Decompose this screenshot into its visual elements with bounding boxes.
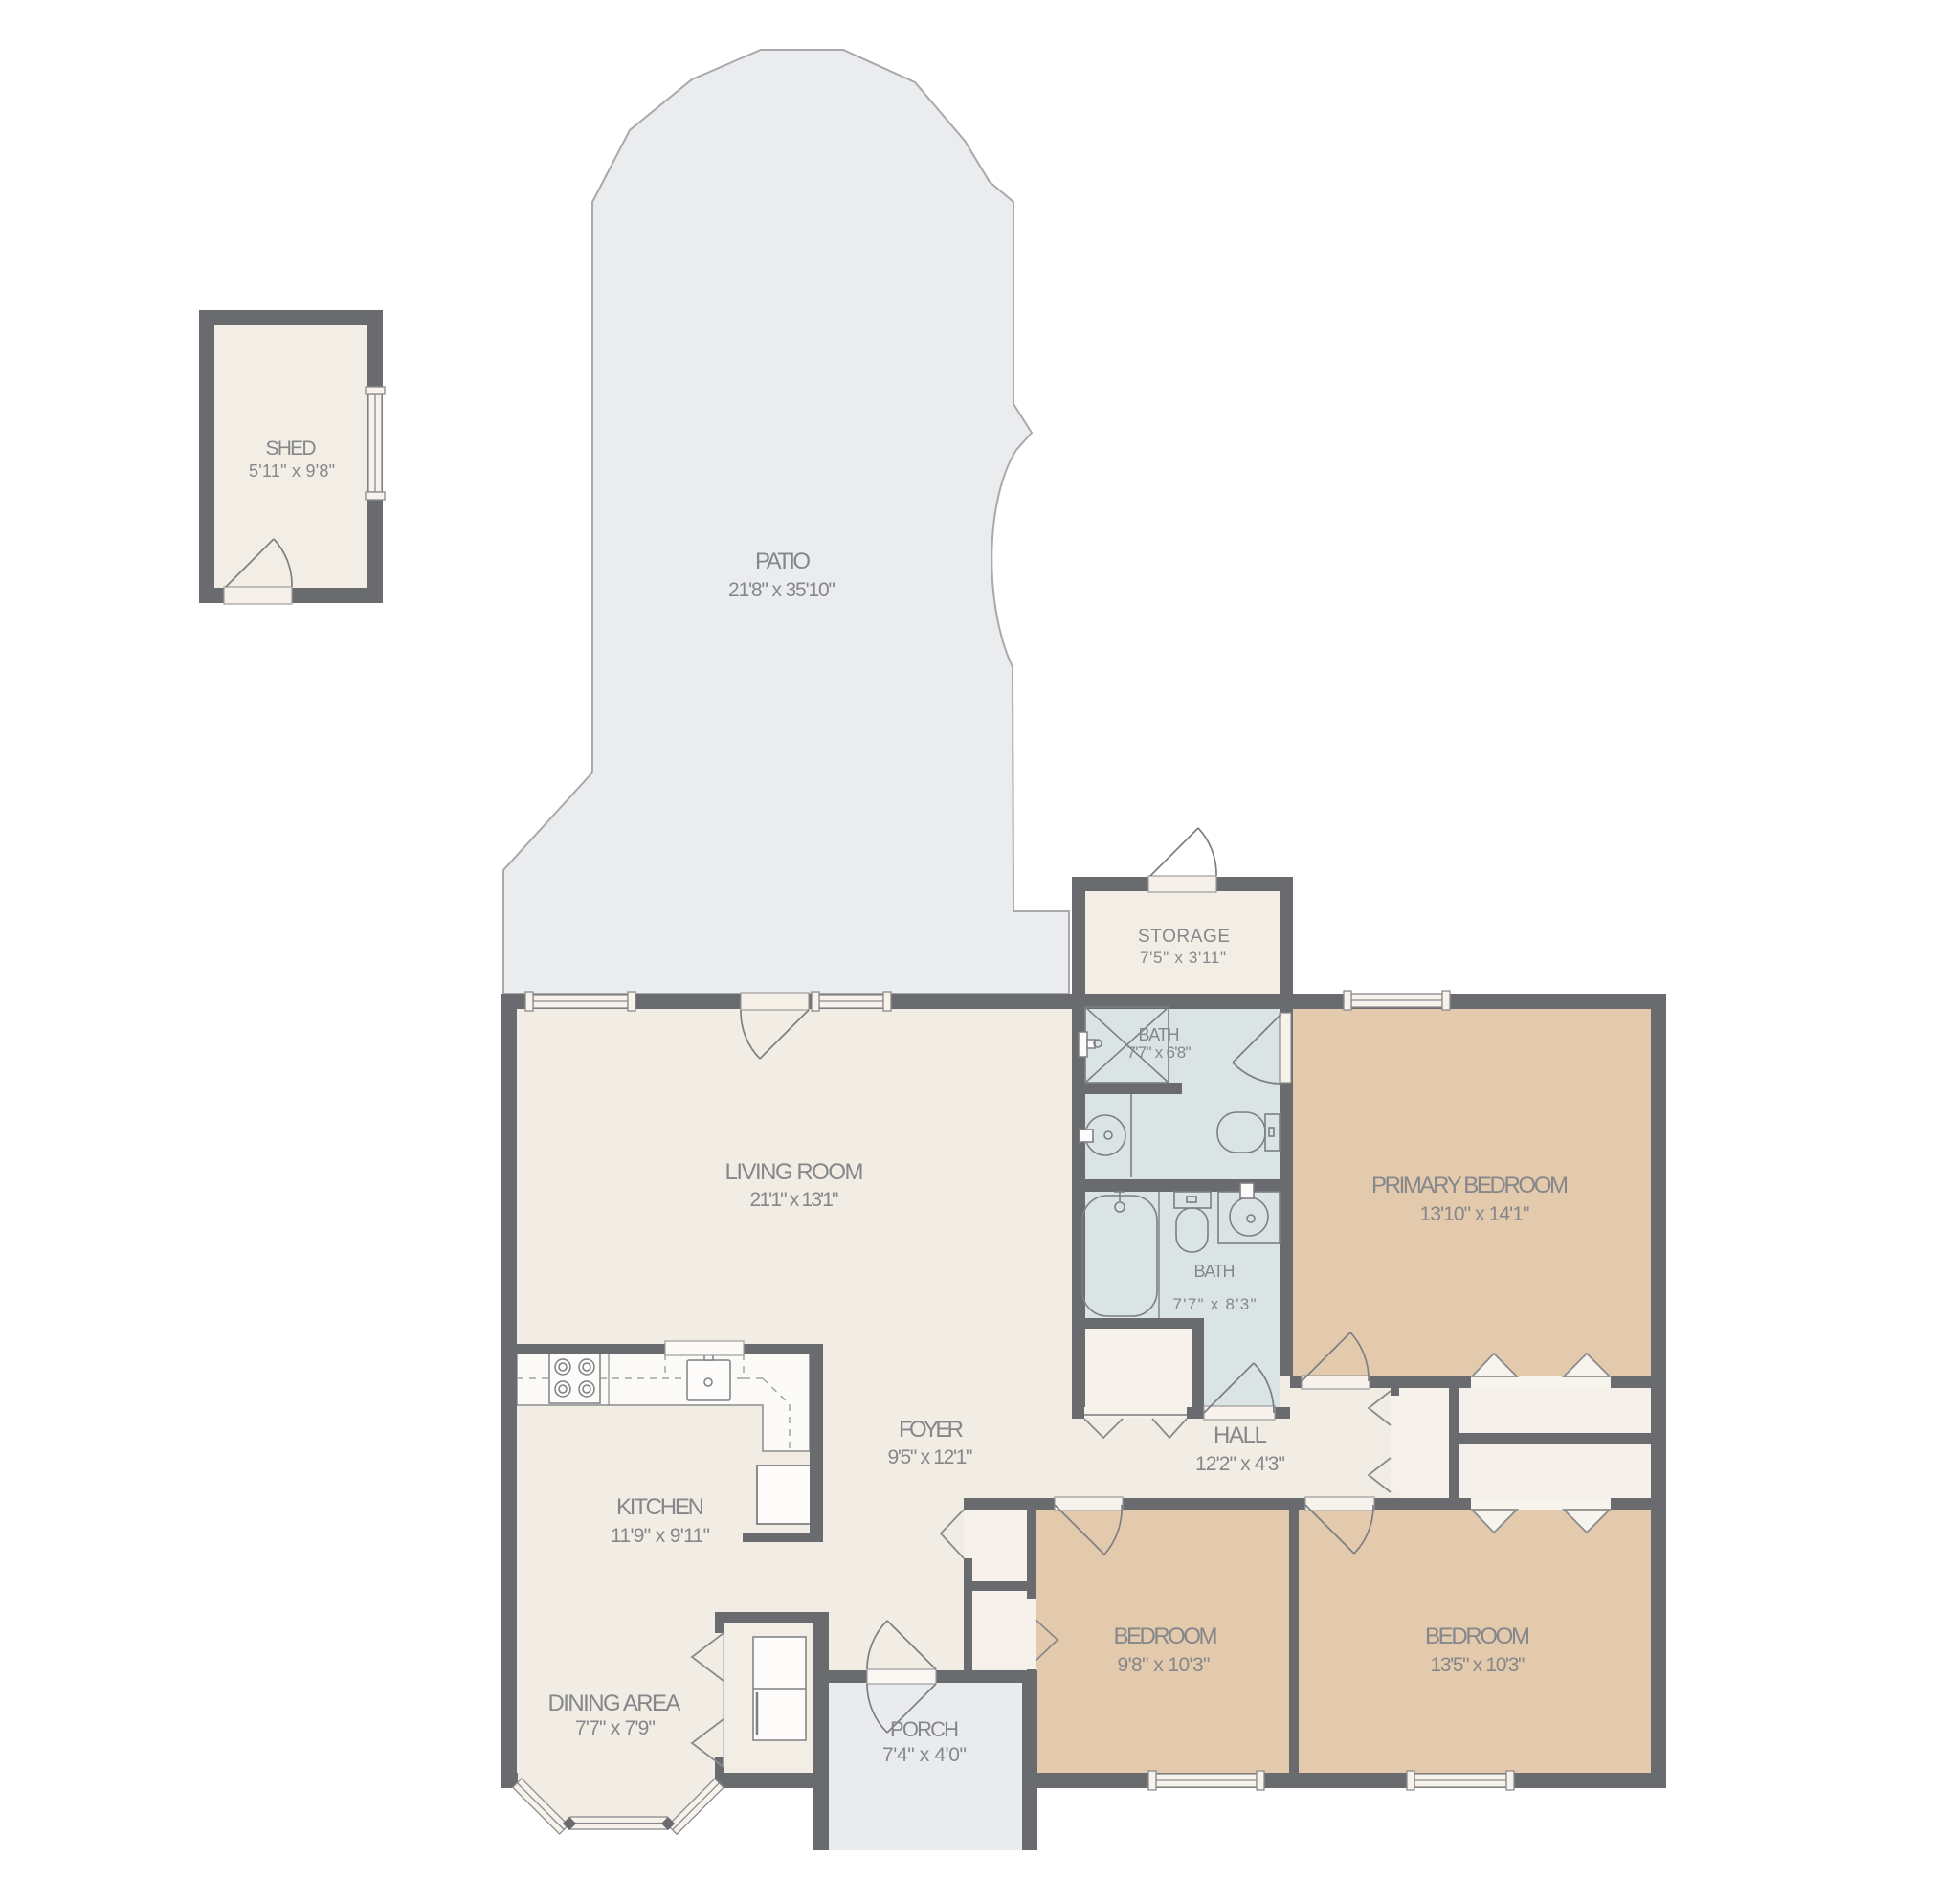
svg-text:BATH: BATH	[1194, 1262, 1236, 1281]
svg-text:BEDROOM: BEDROOM	[1425, 1623, 1530, 1649]
svg-text:12'2" x 4'3": 12'2" x 4'3"	[1195, 1453, 1285, 1475]
svg-text:5'11" x 9'8": 5'11" x 9'8"	[249, 461, 335, 481]
svg-text:7'7" x 8'3": 7'7" x 8'3"	[1173, 1295, 1257, 1313]
svg-text:BEDROOM: BEDROOM	[1114, 1623, 1218, 1649]
svg-text:PORCH: PORCH	[890, 1717, 959, 1741]
svg-text:7'4" x 4'0": 7'4" x 4'0"	[882, 1744, 967, 1766]
svg-text:7'7" x 7'9": 7'7" x 7'9"	[575, 1717, 656, 1739]
svg-text:7'5" x 3'11": 7'5" x 3'11"	[1140, 949, 1226, 967]
svg-text:13'10" x 14'1": 13'10" x 14'1"	[1420, 1203, 1530, 1225]
svg-text:21'8" x 35'10": 21'8" x 35'10"	[728, 579, 835, 601]
svg-text:HALL: HALL	[1214, 1422, 1267, 1448]
svg-text:BATH: BATH	[1139, 1025, 1180, 1044]
svg-text:9'5" x 12'1": 9'5" x 12'1"	[888, 1446, 973, 1468]
svg-text:21'1" x 13'1": 21'1" x 13'1"	[750, 1189, 839, 1211]
svg-text:SHED: SHED	[266, 437, 317, 459]
svg-text:7'7" x 6'8": 7'7" x 6'8"	[1127, 1043, 1192, 1062]
svg-text:STORAGE: STORAGE	[1138, 927, 1230, 947]
svg-text:9'8" x 10'3": 9'8" x 10'3"	[1118, 1654, 1211, 1676]
svg-text:11'9" x 9'11": 11'9" x 9'11"	[611, 1525, 710, 1547]
svg-text:DINING AREA: DINING AREA	[548, 1690, 681, 1716]
svg-text:KITCHEN: KITCHEN	[616, 1494, 704, 1520]
svg-text:13'5" x 10'3": 13'5" x 10'3"	[1431, 1654, 1526, 1676]
svg-text:PRIMARY BEDROOM: PRIMARY BEDROOM	[1371, 1173, 1569, 1198]
svg-text:LIVING ROOM: LIVING ROOM	[725, 1159, 864, 1185]
svg-text:PATIO: PATIO	[755, 548, 811, 574]
svg-text:FOYER: FOYER	[899, 1417, 964, 1443]
